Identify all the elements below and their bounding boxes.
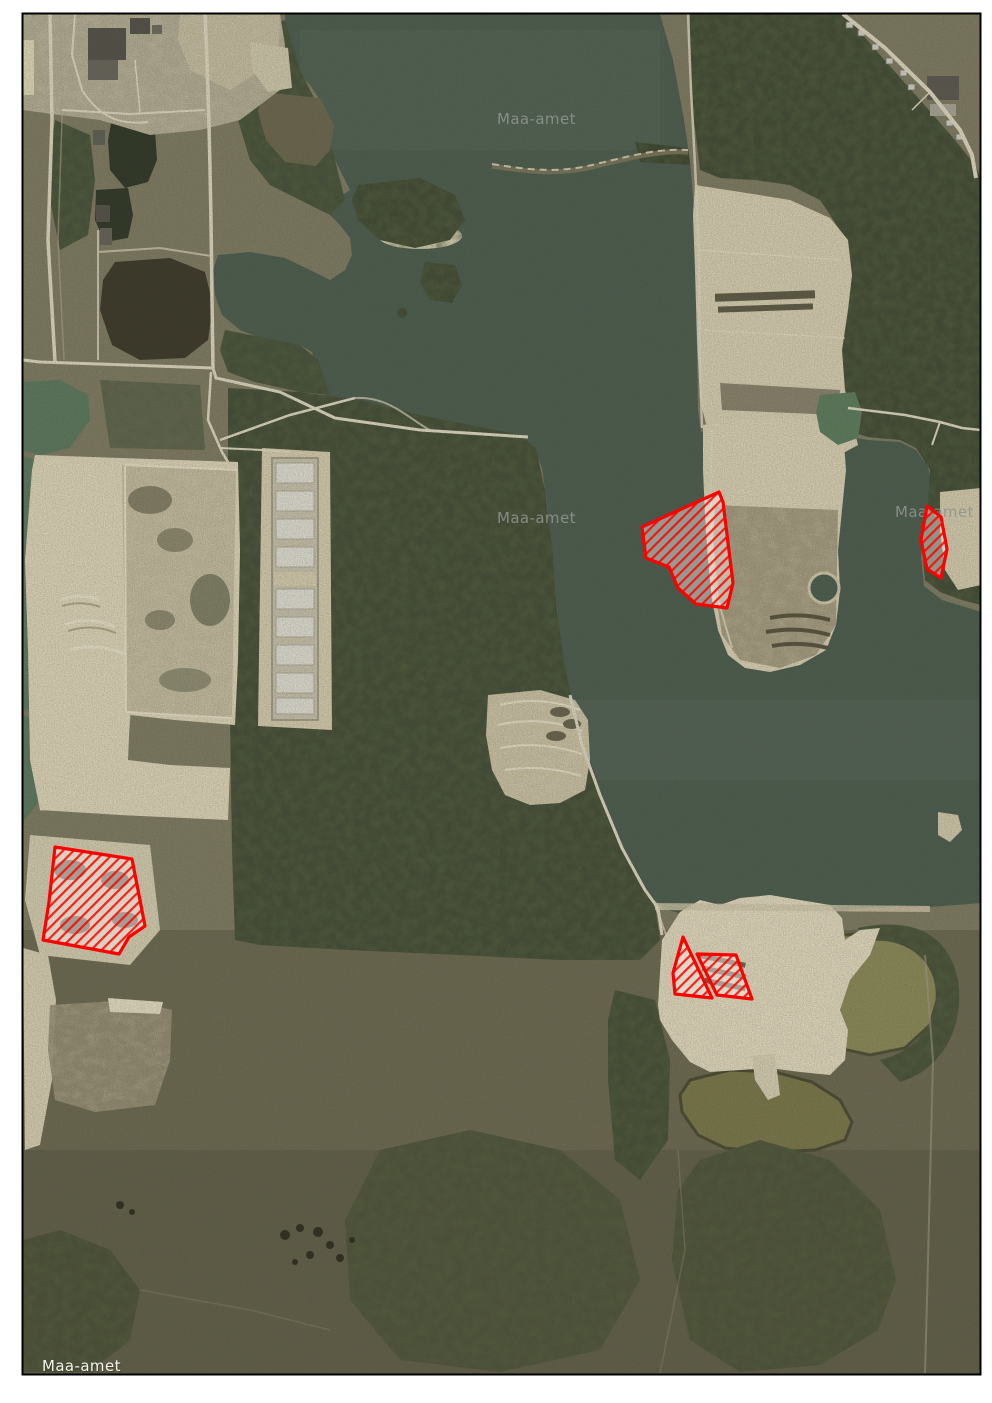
map-print-page: Maa-ametMaa-ametMaa-amet Maa-ametMaa-ame…	[0, 0, 992, 1403]
provider-watermark: Maa-amet	[497, 509, 576, 527]
watermark-layer-white: Maa-ametMaa-amet	[42, 1357, 122, 1376]
provider-watermark: Maa-amet	[497, 110, 576, 128]
provider-watermark: Maa-amet	[42, 1357, 121, 1375]
aerial-map[interactable]: Maa-ametMaa-ametMaa-amet Maa-ametMaa-ame…	[0, 0, 992, 1403]
orthophoto-layer: Maa-ametMaa-ametMaa-amet Maa-ametMaa-ame…	[20, 14, 981, 1376]
highlighted-parcel-parcel-3[interactable]	[43, 847, 145, 954]
